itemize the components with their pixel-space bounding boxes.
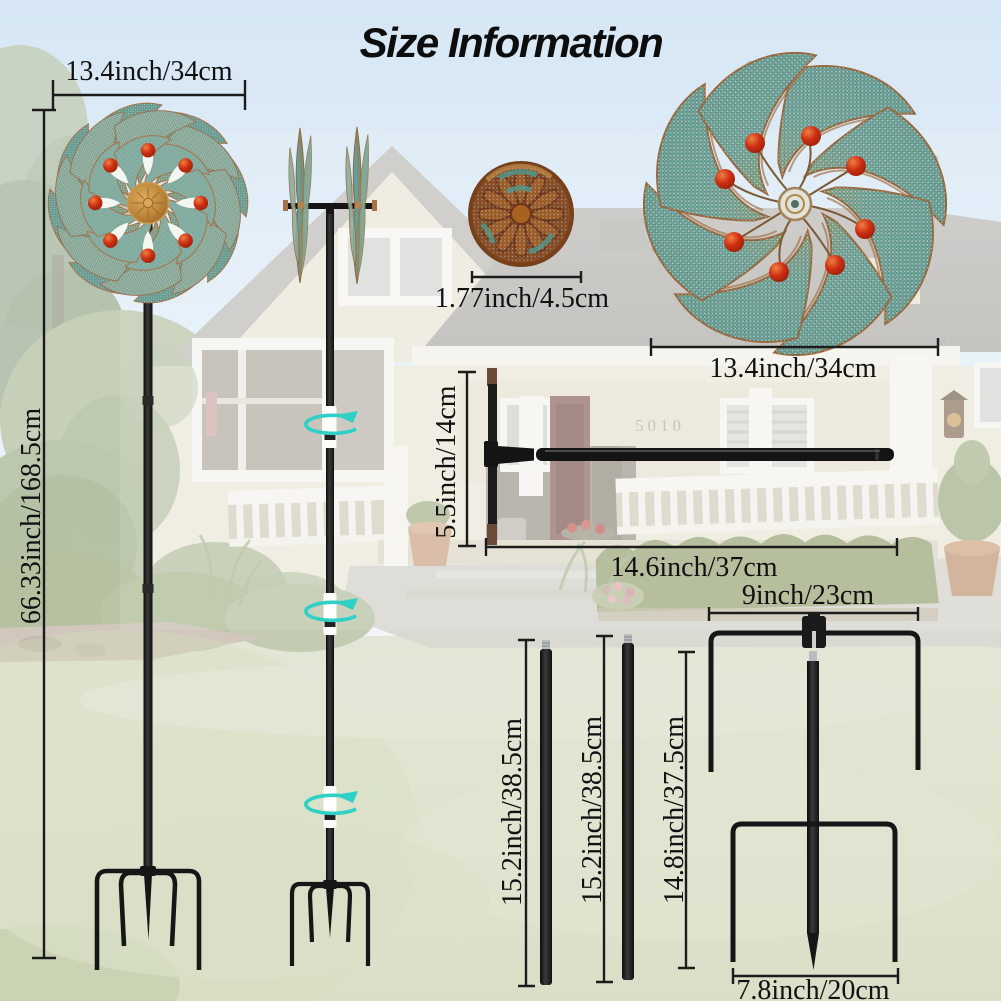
svg-text:5.5inch/14cm: 5.5inch/14cm	[431, 385, 462, 538]
svg-text:7.8inch/20cm: 7.8inch/20cm	[736, 975, 889, 1001]
svg-text:14.6inch/37cm: 14.6inch/37cm	[610, 552, 777, 583]
svg-text:15.2inch/38.5cm: 15.2inch/38.5cm	[577, 716, 608, 904]
svg-text:66.33inch/168.5cm: 66.33inch/168.5cm	[16, 408, 47, 624]
svg-text:9inch/23cm: 9inch/23cm	[742, 580, 874, 611]
svg-text:13.4inch/34cm: 13.4inch/34cm	[65, 56, 232, 87]
svg-text:15.2inch/38.5cm: 15.2inch/38.5cm	[497, 718, 528, 906]
svg-text:Size Information: Size Information	[360, 19, 663, 66]
svg-text:14.8inch/37.5cm: 14.8inch/37.5cm	[659, 716, 690, 904]
svg-text:1.77inch/4.5cm: 1.77inch/4.5cm	[435, 283, 609, 314]
svg-text:13.4inch/34cm: 13.4inch/34cm	[709, 353, 876, 384]
